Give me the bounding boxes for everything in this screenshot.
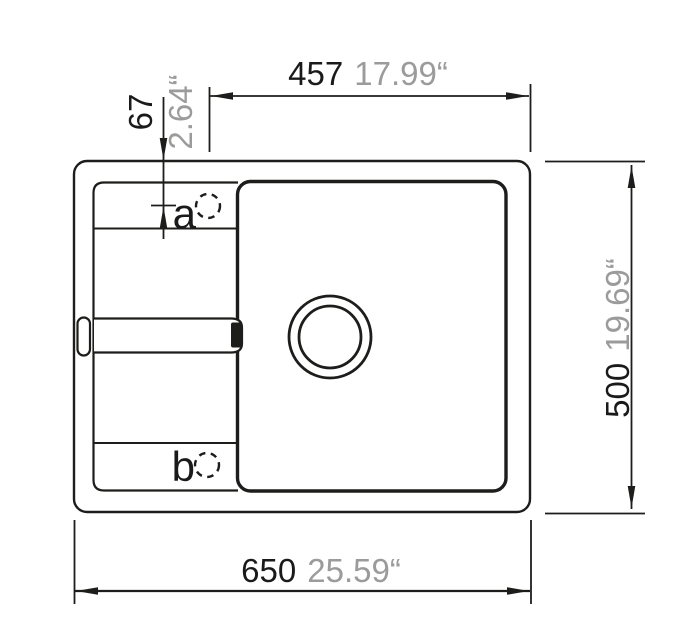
dim-top-text: 45717.99“ bbox=[288, 55, 448, 92]
dim-right-inch: 19.69“ bbox=[599, 258, 636, 352]
dim-top-arrow-right bbox=[506, 92, 528, 100]
dim-top-mm: 457 bbox=[288, 55, 343, 92]
dim-right-mm: 500 bbox=[599, 363, 636, 418]
dim-bottom-mm: 650 bbox=[241, 552, 296, 589]
dim-right-arrow-up bbox=[628, 166, 636, 188]
drawing-canvas: a b 45717.99“ 67 2.64“ 50019.69“ 65025. bbox=[0, 0, 688, 640]
drainboard-rail bbox=[94, 319, 242, 353]
tap-hole-b-label: b bbox=[172, 443, 195, 490]
sink-dimension-drawing: a b 45717.99“ 67 2.64“ 50019.69“ 65025. bbox=[0, 0, 688, 640]
dim-bottom-arrow-right bbox=[507, 587, 529, 595]
dimension-top-width: 45717.99“ bbox=[210, 55, 531, 152]
dim-bottom-text: 65025.59“ bbox=[241, 552, 401, 589]
dim-offset-mm: 67 bbox=[122, 94, 159, 131]
dim-top-inch: 17.99“ bbox=[354, 55, 448, 92]
dim-top-arrow-left bbox=[211, 92, 233, 100]
dimension-bottom-width: 65025.59“ bbox=[75, 520, 532, 604]
dim-right-text: 50019.69“ bbox=[599, 258, 636, 418]
dim-bottom-inch: 25.59“ bbox=[307, 552, 401, 589]
dim-offset-inch: 2.64“ bbox=[162, 74, 199, 149]
tap-hole-a-label: a bbox=[173, 190, 197, 237]
dim-right-arrow-down bbox=[628, 486, 636, 508]
overflow-slot bbox=[78, 318, 91, 356]
dimension-height: 50019.69“ bbox=[545, 162, 645, 514]
dim-bottom-arrow-left bbox=[76, 587, 98, 595]
drainboard-rail-end-cap bbox=[231, 323, 242, 348]
